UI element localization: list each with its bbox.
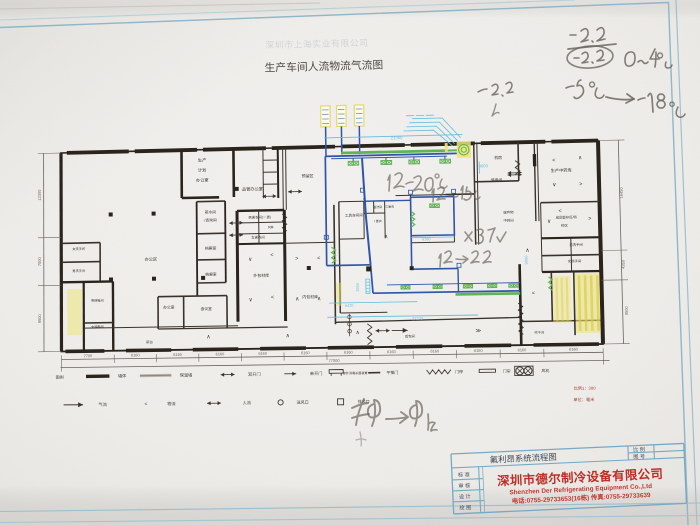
svg-text:≫: ≫	[475, 328, 481, 334]
svg-text:∨: ∨	[552, 182, 556, 188]
svg-text:6160: 6160	[173, 352, 183, 357]
svg-text:男换鞋间: 男换鞋间	[91, 298, 104, 303]
svg-text:4350: 4350	[621, 259, 626, 269]
svg-text:6160: 6160	[344, 350, 354, 355]
svg-text:女更衣间: 女更衣间	[251, 234, 265, 239]
svg-text:9000: 9000	[524, 255, 529, 265]
svg-text:6160: 6160	[387, 349, 397, 354]
svg-text:男更衣间(一更): 男更衣间(一更)	[248, 214, 271, 219]
svg-text:∨: ∨	[248, 257, 252, 263]
svg-text:16450: 16450	[619, 187, 624, 199]
svg-text:6160: 6160	[422, 237, 431, 241]
svg-text:吹干间: 吹干间	[535, 330, 545, 335]
svg-text:∨: ∨	[249, 297, 253, 303]
svg-text:>: >	[295, 256, 298, 262]
svg-text:平推门: 平推门	[386, 369, 398, 375]
svg-text:∧: ∧	[206, 334, 210, 340]
svg-text:6160: 6160	[216, 351, 226, 356]
svg-text:∧: ∧	[578, 155, 582, 161]
svg-text:12300: 12300	[37, 189, 42, 201]
svg-text:6160: 6160	[301, 350, 311, 355]
svg-text:成品暂存区/待: 成品暂存区/待	[556, 214, 578, 219]
svg-text:9500: 9500	[624, 305, 629, 315]
svg-text:档案室: 档案室	[205, 245, 217, 250]
svg-text:中转间: 中转间	[503, 218, 514, 223]
svg-text:<: <	[552, 158, 555, 164]
svg-text:茶水间: 茶水间	[205, 209, 217, 214]
svg-text:9000: 9000	[479, 163, 489, 168]
svg-text:盥洗间: 盥洗间	[373, 204, 382, 209]
svg-text:6420: 6420	[345, 304, 354, 308]
svg-text:工具车间间: 工具车间间	[345, 212, 363, 217]
svg-text:风淋: 风淋	[268, 224, 274, 229]
svg-text:男洗手间: 男洗手间	[72, 268, 85, 273]
svg-text:6160: 6160	[430, 348, 440, 353]
svg-text:女洗手间: 女洗手间	[568, 258, 582, 263]
svg-text:6160: 6160	[569, 347, 579, 352]
svg-text:三更衣: 三更衣	[385, 204, 394, 209]
svg-text:<: <	[144, 401, 147, 407]
svg-text:I 更衣: I 更衣	[374, 218, 382, 223]
svg-text:风机: 风机	[541, 367, 549, 373]
svg-text:女洗手间: 女洗手间	[72, 246, 85, 251]
svg-text:>: >	[579, 182, 582, 188]
svg-text:<: <	[558, 208, 561, 214]
svg-text:男洗手间: 男洗手间	[569, 242, 583, 247]
svg-text:图 号: 图 号	[633, 453, 645, 461]
svg-text:前台: 前台	[146, 339, 153, 344]
svg-text:机房: 机房	[494, 154, 502, 160]
svg-text:6160: 6160	[474, 348, 484, 353]
svg-text:∧: ∧	[525, 248, 529, 254]
svg-text:∧: ∧	[295, 296, 299, 302]
svg-text:/咨询间: /咨询间	[204, 217, 217, 222]
svg-text:6160: 6160	[518, 347, 528, 352]
svg-text:<: <	[317, 256, 320, 262]
svg-text:送风口: 送风口	[297, 399, 309, 405]
svg-text:6160: 6160	[131, 352, 141, 357]
svg-text:废弃物: 废弃物	[503, 209, 514, 214]
svg-text:<: <	[270, 252, 273, 258]
svg-text:∨: ∨	[547, 219, 551, 225]
svg-text:>: >	[588, 216, 591, 222]
svg-text:77000: 77000	[328, 358, 340, 363]
svg-text:∧: ∧	[384, 234, 388, 240]
svg-text:停电间: 停电间	[491, 177, 503, 182]
svg-text:6160: 6160	[258, 351, 268, 356]
svg-text:门帘: 门帘	[503, 368, 511, 374]
svg-text:后包间: 后包间	[405, 333, 416, 338]
svg-text:3950: 3950	[356, 283, 360, 292]
svg-text:<: <	[532, 291, 535, 297]
svg-text:办公室: 办公室	[163, 305, 175, 310]
svg-text:检区: 检区	[561, 223, 568, 228]
svg-text:内包材库: 内包材库	[302, 293, 318, 299]
svg-text:图例: 图例	[56, 374, 64, 380]
svg-text:紫外消毒杀菌装置: 紫外消毒杀菌装置	[343, 370, 368, 375]
svg-text:外包材库: 外包材库	[253, 272, 269, 278]
svg-text:∧: ∧	[286, 333, 290, 339]
svg-text:∧: ∧	[356, 330, 360, 336]
svg-text:女换鞋间: 女换鞋间	[91, 324, 104, 329]
svg-text:会议室: 会议室	[201, 306, 213, 311]
svg-text:27273: 27273	[412, 316, 424, 321]
svg-text:档案室: 档案室	[205, 272, 217, 277]
svg-text:预留区: 预留区	[302, 172, 314, 178]
svg-text:21360: 21360	[391, 135, 403, 140]
svg-text:∧: ∧	[317, 296, 321, 302]
svg-text:7700: 7700	[84, 353, 94, 358]
svg-text:门停: 门停	[455, 368, 463, 374]
svg-text:7000: 7000	[37, 256, 42, 266]
svg-text:<: <	[271, 295, 274, 301]
svg-text:9500: 9500	[37, 313, 42, 323]
